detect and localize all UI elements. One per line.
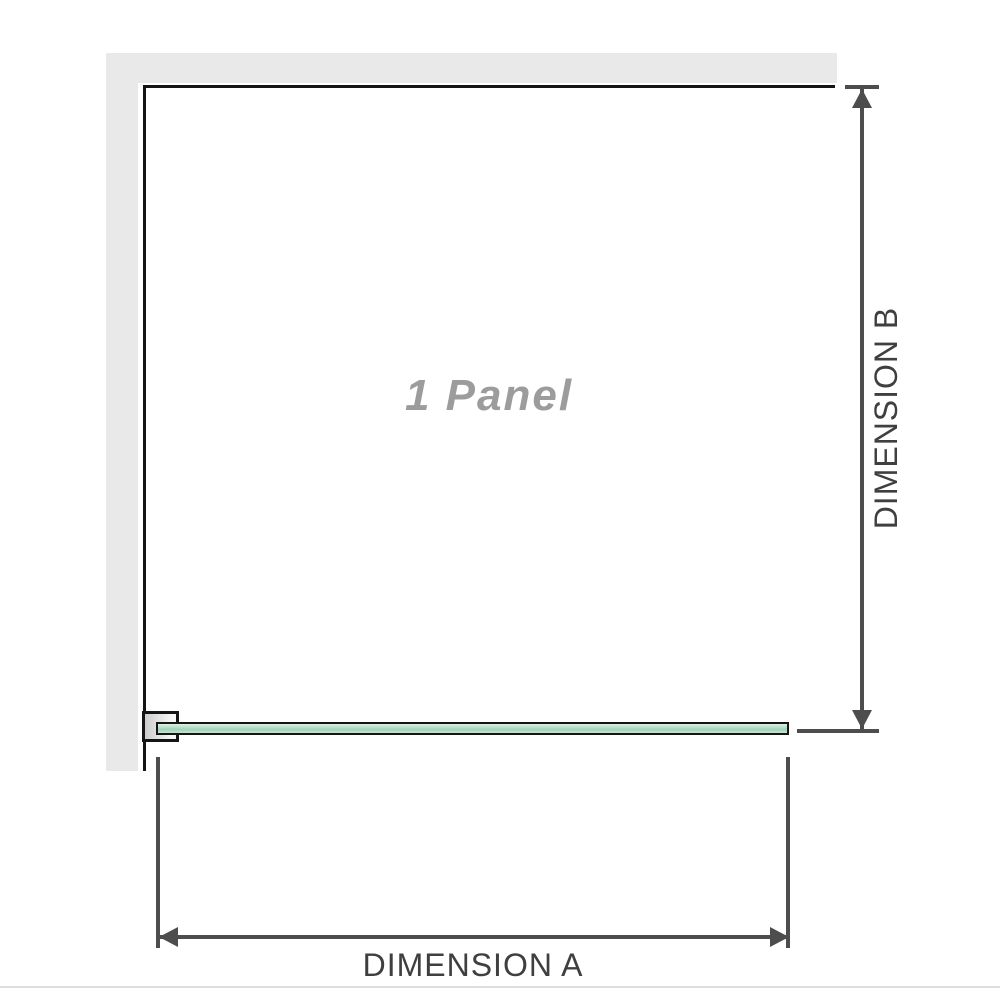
dimension-a-label: DIMENSION A	[273, 947, 673, 984]
arrow-right-icon	[770, 927, 789, 947]
wall-left-strip	[106, 53, 138, 771]
panel-diagram: 1 Panel DIMENSION B DIMENSION A	[0, 0, 1000, 1000]
dimension-a-line	[160, 935, 788, 939]
image-bottom-edge-line	[0, 986, 1000, 988]
arrow-up-icon	[852, 89, 872, 108]
dimension-a-left-extension-line	[156, 757, 160, 948]
dimension-a-right-extension-line	[786, 757, 790, 948]
glass-panel-bar	[156, 722, 789, 735]
arrow-down-icon	[852, 710, 872, 729]
panel-count-label: 1 Panel	[143, 371, 835, 421]
dimension-b-line	[860, 89, 864, 730]
dimension-b-bottom-tick	[797, 729, 879, 733]
arrow-left-icon	[159, 927, 178, 947]
dimension-b-label: DIMENSION B	[868, 273, 902, 563]
wall-top-strip	[106, 53, 837, 83]
panel-outline	[143, 85, 835, 771]
